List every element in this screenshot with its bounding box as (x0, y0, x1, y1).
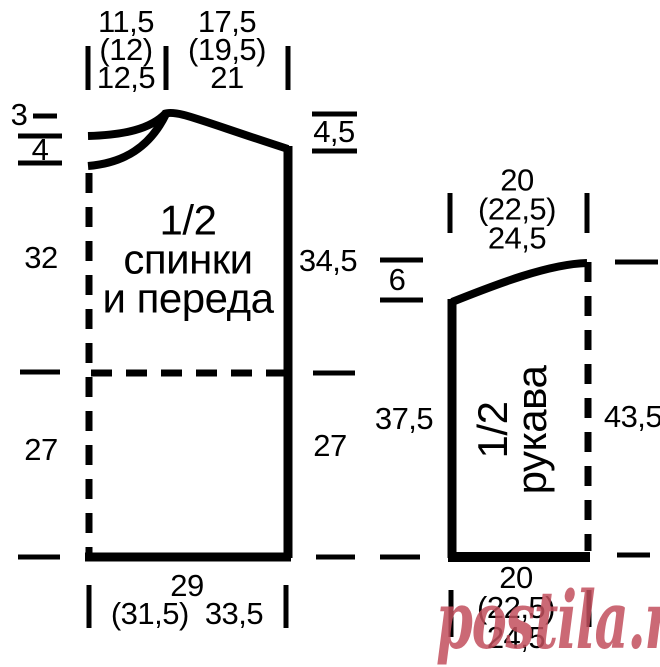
body-side-lower-left-label: 27 (24, 436, 57, 464)
body-shoulder-width-size3: 21 (188, 64, 266, 92)
body-side-lower-right-label: 27 (313, 432, 346, 460)
body-piece-title-line1: 1/2 (103, 201, 274, 240)
body-piece-outline (85, 113, 291, 558)
body-piece-title-line3: и переда (103, 279, 274, 318)
sleeve-cap-height-label: 6 (389, 266, 406, 294)
sleeve-piece-title: 1/2 рукава (473, 366, 551, 495)
sleeve-side-left-label: 37,5 (375, 405, 433, 433)
body-piece-title-line2: спинки (103, 240, 274, 279)
sleeve-side-right-label: 43,5 (604, 403, 660, 431)
body-hem-width-size3: 33,5 (205, 600, 263, 628)
body-shoulder-width-label: 17,5 (19,5) 21 (188, 8, 266, 92)
shoulder-slope-label: 4,5 (313, 118, 355, 146)
sleeve-top-edge (452, 263, 587, 302)
body-hem-width-line2: (31,5) 33,5 (111, 600, 263, 628)
body-hem-width-size2: (31,5) (111, 600, 189, 628)
body-neck-width-label: 11,5 (12) 12,5 (97, 8, 155, 92)
sleeve-top-width-size3: 24,5 (478, 224, 556, 253)
front-neck-depth-label: 4 (32, 136, 49, 164)
back-neck-depth-label: 3 (11, 101, 28, 129)
sleeve-top-width-label: 20 (22,5) 24,5 (478, 166, 556, 253)
body-side-upper-label: 32 (24, 244, 57, 272)
knitting-schematic: 11,5 (12) 12,5 17,5 (19,5) 21 3 4 4,5 32… (0, 0, 660, 660)
sleeve-piece-title-line2: рукава (512, 366, 551, 495)
body-neck-width-size3: 12,5 (97, 64, 155, 92)
sleeve-top-width-size2: (22,5) (478, 195, 556, 224)
body-piece-title: 1/2 спинки и переда (103, 201, 274, 318)
watermark: postila.ru (436, 580, 660, 660)
body-shoulder-line (164, 113, 288, 149)
body-hem-width-label: 29 (31,5) 33,5 (111, 572, 263, 628)
sleeve-top-width-size1: 20 (478, 166, 556, 195)
pattern-linework (0, 0, 660, 660)
sleeve-piece-title-line1: 1/2 (473, 366, 512, 495)
armhole-side-label: 34,5 (299, 247, 357, 275)
